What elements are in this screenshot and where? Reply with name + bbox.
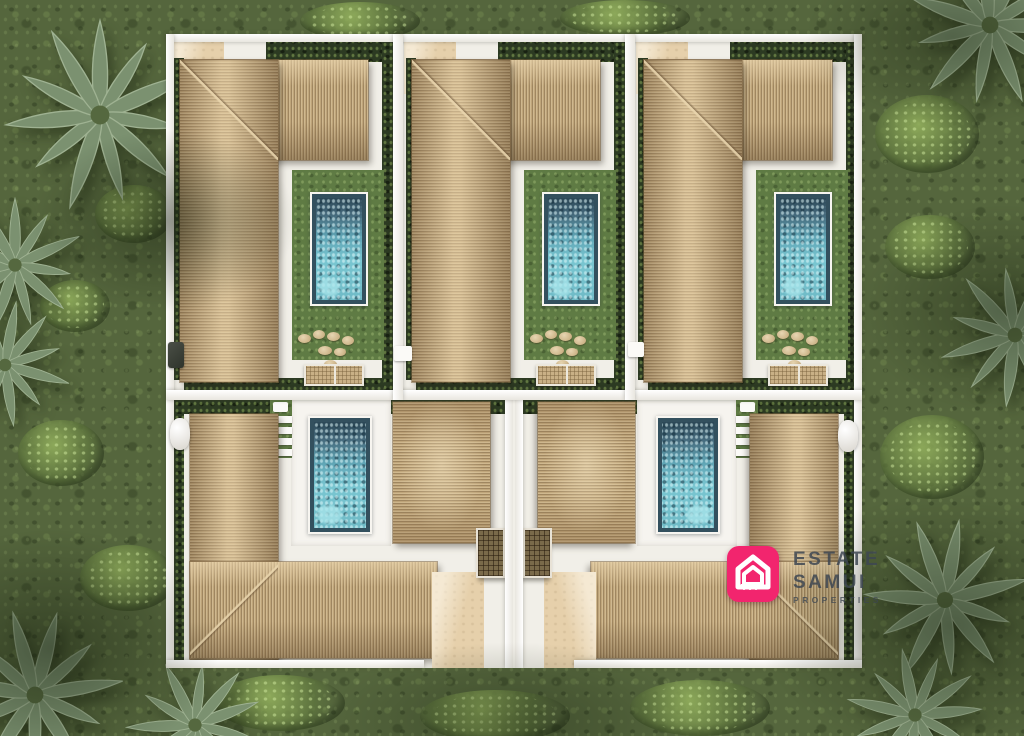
aerial-villa-render: ESTATE SAMUI PROPERTIES xyxy=(0,0,1024,736)
stepping-stone xyxy=(574,336,586,345)
stepping-stone xyxy=(334,348,346,356)
ac-unit xyxy=(168,342,184,368)
stepping-stone xyxy=(566,348,578,356)
stepping-stone xyxy=(798,348,810,356)
swimming-pool xyxy=(656,416,720,534)
villa-plot-5 xyxy=(515,400,862,668)
compound-wall-north xyxy=(166,34,862,42)
swimming-pool xyxy=(310,192,368,306)
villa-plot-3 xyxy=(630,34,862,390)
thatched-roof-wing xyxy=(644,60,742,382)
swimming-pool xyxy=(542,192,600,306)
utility-box xyxy=(628,342,644,357)
stepping-stone xyxy=(791,332,804,341)
outdoor-shower xyxy=(273,402,288,412)
brand-line-1: ESTATE xyxy=(793,550,882,569)
hedge-left xyxy=(174,414,184,660)
compound-wall-south xyxy=(166,660,424,668)
swimming-pool xyxy=(774,192,832,306)
stepping-stone xyxy=(342,336,354,345)
rattan-daybed xyxy=(304,364,364,386)
bush xyxy=(560,0,690,36)
outdoor-shower xyxy=(740,402,755,412)
thatched-roof-detached xyxy=(393,402,490,543)
utility-box xyxy=(394,346,412,361)
thatched-roof-wing xyxy=(180,60,278,382)
thatched-roof-wing xyxy=(190,562,437,658)
pool-water xyxy=(548,198,594,300)
water-tank xyxy=(170,418,190,450)
thatched-roof-wing xyxy=(412,60,510,382)
pool-water xyxy=(314,422,366,528)
watermark-logo: ESTATE SAMUI PROPERTIES xyxy=(727,546,882,605)
stepping-stone xyxy=(327,332,340,341)
house-icon xyxy=(727,546,779,602)
bush xyxy=(630,680,770,736)
stepping-stone xyxy=(806,336,818,345)
stepping-stone xyxy=(559,332,572,341)
stepping-stone xyxy=(777,330,789,339)
brand-line-3: PROPERTIES xyxy=(793,596,882,605)
dividing-wall-horizontal xyxy=(166,390,862,400)
stepping-stone xyxy=(762,334,775,343)
brand-line-2: SAMUI xyxy=(793,573,882,592)
entry-pergola xyxy=(476,528,505,578)
stepping-stone xyxy=(782,346,796,355)
water-tank xyxy=(838,420,858,452)
stepping-stone xyxy=(530,334,543,343)
stepping-stone xyxy=(318,346,332,355)
stepping-stone xyxy=(313,330,325,339)
driveway xyxy=(544,572,596,668)
palm-tree xyxy=(0,600,130,736)
rattan-daybed xyxy=(768,364,828,386)
villa-plot-1 xyxy=(166,34,398,390)
swimming-pool xyxy=(308,416,372,534)
bush xyxy=(420,690,570,736)
palm-tree xyxy=(895,0,1024,120)
villa-plot-4 xyxy=(166,400,513,668)
stepping-stone xyxy=(550,346,564,355)
boundary-wall xyxy=(515,400,523,668)
rattan-daybed xyxy=(536,364,596,386)
pool-water xyxy=(316,198,362,300)
thatched-roof-detached xyxy=(538,402,635,543)
palm-tree xyxy=(930,250,1024,420)
pool-water xyxy=(780,198,826,300)
entry-pergola xyxy=(523,528,552,578)
boundary-wall xyxy=(505,400,513,668)
palm-tree xyxy=(840,640,990,736)
stepping-stone xyxy=(545,330,557,339)
driveway xyxy=(432,572,484,668)
pool-water xyxy=(662,422,714,528)
compound-wall-south xyxy=(574,660,862,668)
palm-tree xyxy=(0,290,80,440)
bush xyxy=(880,415,984,499)
villa-plot-2 xyxy=(398,34,630,390)
stepping-stone xyxy=(298,334,311,343)
